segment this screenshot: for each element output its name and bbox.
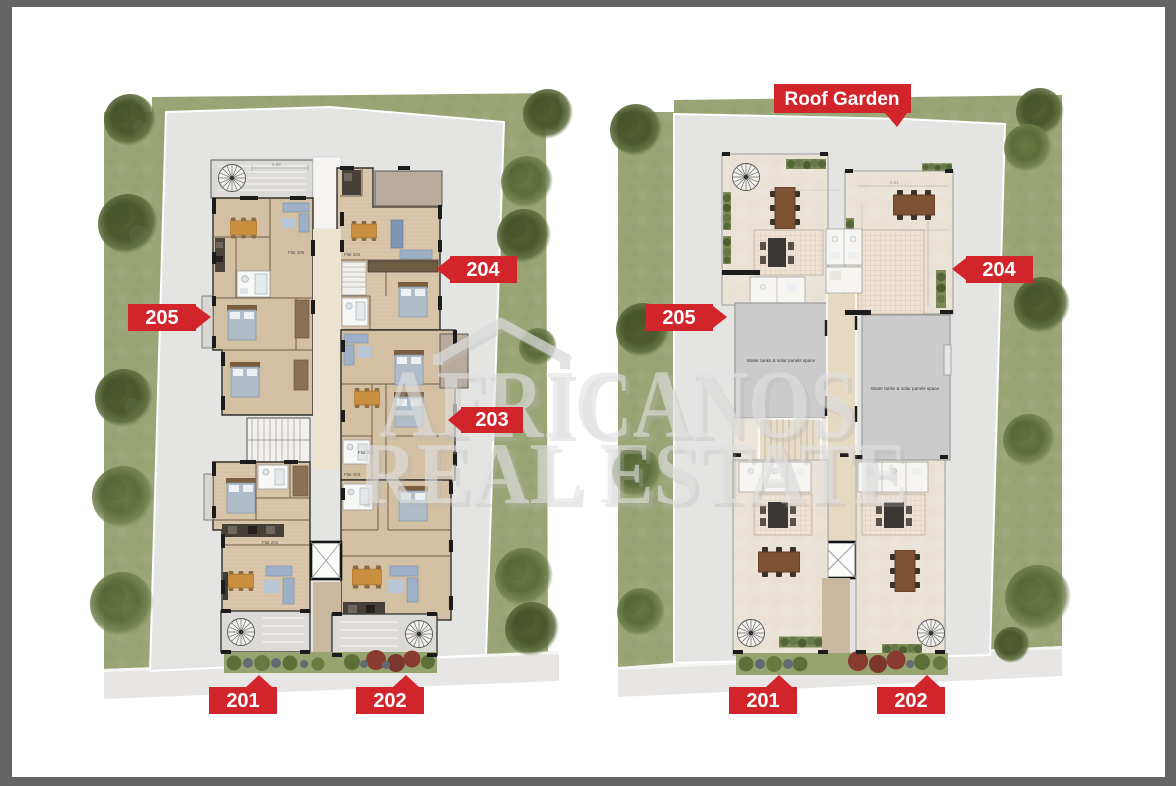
svg-text:9.98: 9.98 [272,162,281,167]
svg-text:5.81: 5.81 [890,180,899,185]
svg-text:Flat 201: Flat 201 [262,540,279,545]
svg-text:Roof Garden: Roof Garden [784,89,899,110]
svg-text:205: 205 [145,307,178,329]
svg-text:Flat 205: Flat 205 [288,250,305,255]
svg-text:203: 203 [475,409,508,431]
svg-text:Flat 204: Flat 204 [344,252,361,257]
svg-text:205: 205 [662,307,695,329]
svg-text:204: 204 [982,259,1016,281]
svg-text:Water tanks & solar panels sp: Water tanks & solar panels space [871,386,940,391]
svg-text:202: 202 [373,690,406,712]
svg-text:201: 201 [746,690,779,712]
svg-text:REAL ESTATE: REAL ESTATE [358,426,908,523]
svg-text:202: 202 [894,690,927,712]
svg-text:204: 204 [466,259,500,281]
svg-text:201: 201 [226,690,259,712]
